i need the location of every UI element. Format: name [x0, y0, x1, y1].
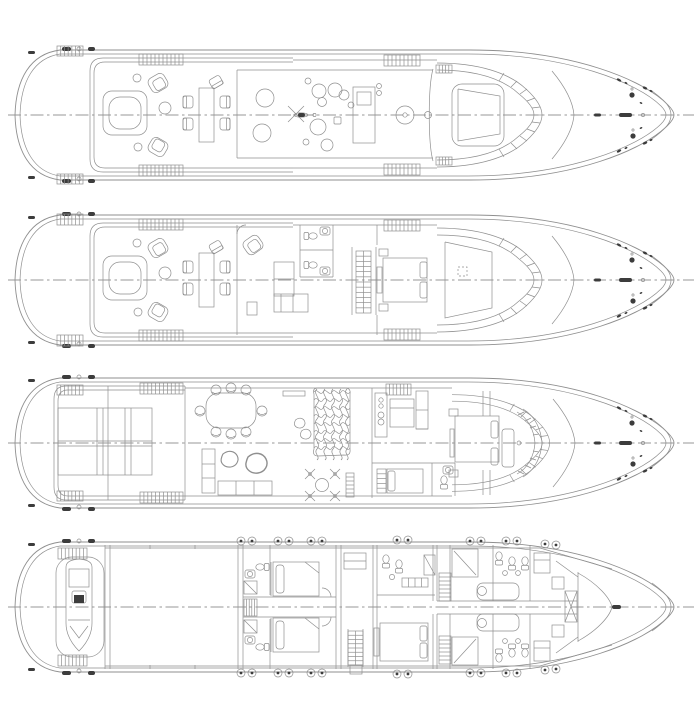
- dining-chair: [211, 385, 221, 395]
- bow-hardware: [594, 243, 653, 318]
- bed: [273, 562, 319, 596]
- tender-boat: [66, 559, 92, 651]
- toilet: [521, 557, 528, 570]
- porthole: [552, 665, 560, 673]
- bed: [380, 623, 428, 661]
- toilet: [256, 643, 269, 650]
- chair: [220, 118, 230, 130]
- hull-outline: [8, 539, 694, 675]
- folding-chair: [305, 469, 315, 479]
- side-stairs: [139, 219, 183, 230]
- porthole: [248, 537, 256, 545]
- porthole: [318, 669, 326, 677]
- dining-chair: [257, 406, 267, 416]
- deck-plans-drawing: [0, 0, 699, 720]
- toilet: [395, 560, 402, 573]
- porthole: [274, 669, 282, 677]
- bow-hardware: [594, 406, 653, 481]
- toilet: [508, 644, 515, 657]
- porthole: [318, 537, 326, 545]
- hull-outline: [8, 375, 694, 511]
- yacht-deck-plans-page: [0, 0, 699, 720]
- toilet: [440, 476, 447, 489]
- beanbag: [253, 124, 271, 142]
- coffee-table: [246, 453, 267, 473]
- chair: [183, 283, 193, 295]
- fwd-stairs: [384, 329, 420, 340]
- toilet: [304, 232, 317, 239]
- lounge-chair: [146, 301, 170, 324]
- hull-outline: [8, 47, 694, 183]
- dining-chair: [211, 427, 221, 437]
- berth: [477, 614, 519, 631]
- porthole: [541, 666, 549, 674]
- jacuzzi: [103, 91, 147, 135]
- porthole: [248, 669, 256, 677]
- toilet: [521, 644, 528, 657]
- pouf: [294, 418, 305, 428]
- chair: [208, 75, 223, 90]
- side-table: [247, 302, 257, 315]
- berth: [477, 583, 519, 600]
- sun-deck-plan: [8, 46, 694, 184]
- chair: [220, 261, 230, 273]
- porthole: [237, 669, 245, 677]
- chair: [183, 96, 193, 108]
- dining-chair: [226, 429, 236, 439]
- dining-chair: [195, 406, 205, 416]
- main-deck-plan: [8, 375, 694, 511]
- console: [502, 429, 514, 467]
- porthole: [285, 669, 293, 677]
- porthole: [502, 537, 510, 545]
- lounge-chair: [146, 72, 170, 95]
- area-rug: [314, 388, 351, 460]
- dining-chair: [241, 427, 251, 437]
- jacuzzi: [103, 256, 147, 300]
- lounge-chair: [146, 237, 170, 260]
- sink: [320, 267, 330, 275]
- porthole: [274, 537, 282, 545]
- chair: [220, 283, 230, 295]
- sink: [245, 570, 255, 578]
- galley-island: [390, 399, 414, 427]
- side-stairs: [140, 383, 183, 394]
- porthole: [541, 540, 549, 548]
- armchair: [241, 233, 265, 256]
- dining-table: [206, 393, 256, 428]
- side-stairs: [139, 54, 183, 65]
- bunk: [534, 641, 550, 661]
- sunpads: [58, 408, 152, 475]
- sofa: [202, 449, 215, 493]
- porthole: [307, 669, 315, 677]
- side-stairs: [140, 492, 183, 503]
- chair: [183, 261, 193, 273]
- bow-hardware: [594, 78, 653, 153]
- bridge-deck-plan: [8, 212, 694, 348]
- fwd-stairs: [384, 164, 420, 175]
- side-stairs: [139, 330, 183, 341]
- chair: [208, 240, 223, 255]
- porthole: [307, 537, 315, 545]
- porthole: [502, 669, 510, 677]
- vanity: [402, 578, 428, 587]
- toilet: [382, 555, 389, 568]
- coffee-table: [221, 451, 238, 467]
- bunk: [534, 553, 550, 573]
- toilet: [495, 552, 502, 565]
- game-table: [316, 479, 329, 492]
- fwd-stairs: [384, 55, 420, 66]
- bed: [273, 618, 319, 652]
- dining-chair: [241, 385, 251, 395]
- sideboard: [283, 391, 305, 396]
- lounge-chair: [146, 136, 170, 159]
- staircase: [439, 573, 451, 601]
- porthole: [477, 669, 485, 677]
- porthole: [393, 670, 401, 678]
- sink: [245, 636, 255, 644]
- folding-chair: [330, 469, 340, 479]
- side-stairs: [139, 165, 183, 176]
- porthole: [285, 537, 293, 545]
- fwd-stairs: [384, 220, 420, 231]
- berth: [387, 469, 423, 493]
- crew-stairs: [386, 384, 411, 395]
- toilet: [508, 557, 515, 570]
- porthole: [466, 537, 474, 545]
- porthole: [237, 537, 245, 545]
- porthole: [477, 537, 485, 545]
- porthole: [552, 541, 560, 549]
- beanbag: [256, 89, 274, 107]
- galley-counter: [375, 393, 387, 437]
- bed: [455, 416, 499, 462]
- toilet: [304, 261, 317, 268]
- toilet: [495, 649, 502, 662]
- sink: [320, 227, 330, 235]
- staircase: [439, 636, 451, 664]
- hull-outline: [8, 212, 694, 348]
- helm-console: [458, 267, 467, 276]
- porthole: [404, 536, 412, 544]
- pouf: [300, 429, 311, 439]
- chair: [220, 96, 230, 108]
- porthole: [393, 536, 401, 544]
- ladder: [244, 599, 257, 616]
- porthole: [466, 669, 474, 677]
- porthole: [404, 670, 412, 678]
- chair: [183, 118, 193, 130]
- toilet: [256, 563, 269, 570]
- lower-deck-plan: [8, 536, 694, 678]
